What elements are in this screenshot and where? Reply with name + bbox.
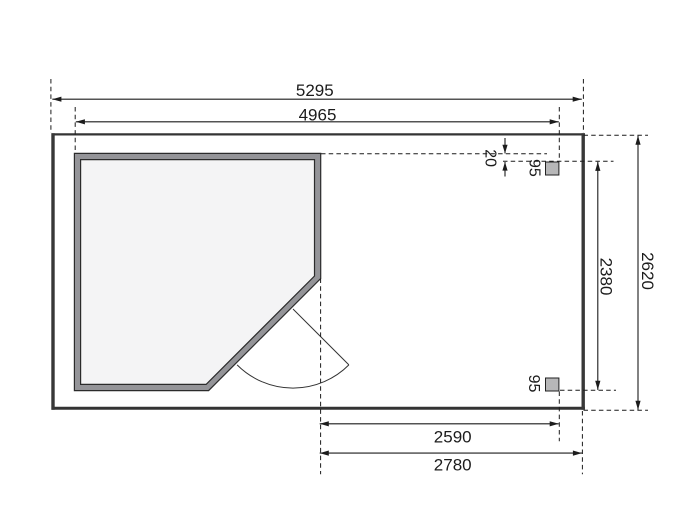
svg-text:2780: 2780 [434,456,472,475]
svg-text:95: 95 [526,159,543,177]
svg-text:20: 20 [482,149,499,167]
svg-text:2620: 2620 [638,252,657,290]
svg-text:4965: 4965 [299,105,337,124]
svg-text:2590: 2590 [434,428,472,447]
svg-text:5295: 5295 [296,81,334,100]
svg-text:95: 95 [525,375,542,393]
svg-text:2380: 2380 [597,258,616,296]
